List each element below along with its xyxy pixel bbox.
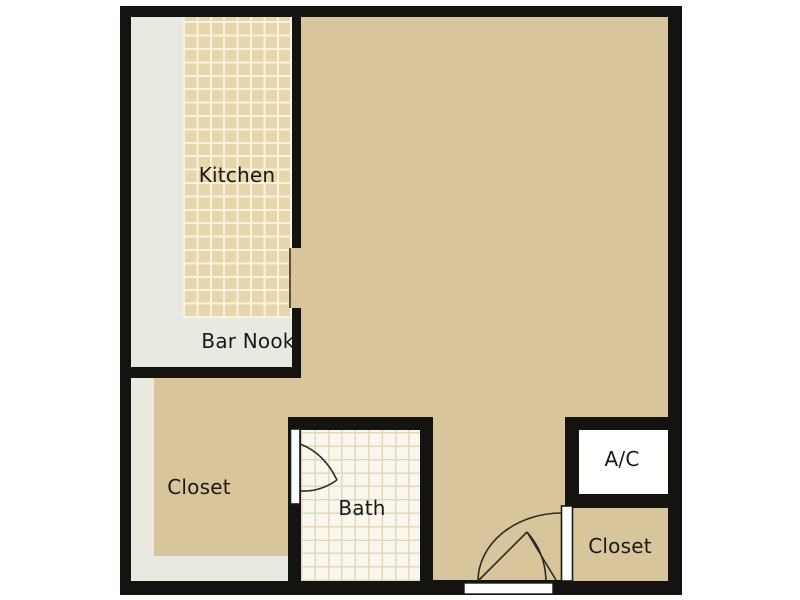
bath-label: Bath bbox=[338, 496, 385, 520]
kitchen-pass-through-opening bbox=[291, 248, 301, 308]
pass-through-counter-edge bbox=[289, 248, 292, 308]
ac-label: A/C bbox=[605, 447, 640, 471]
right-closet-label: Closet bbox=[588, 534, 652, 558]
left-closet-label: Closet bbox=[167, 475, 231, 499]
floorplan-canvas: Kitchen Bar Nook Closet Bath A/C Closet bbox=[0, 0, 800, 600]
bar-nook-label: Bar Nook bbox=[201, 329, 294, 353]
left-closet-floor bbox=[154, 378, 288, 556]
kitchen-label: Kitchen bbox=[199, 163, 276, 187]
closet-passage-floor bbox=[288, 378, 301, 417]
